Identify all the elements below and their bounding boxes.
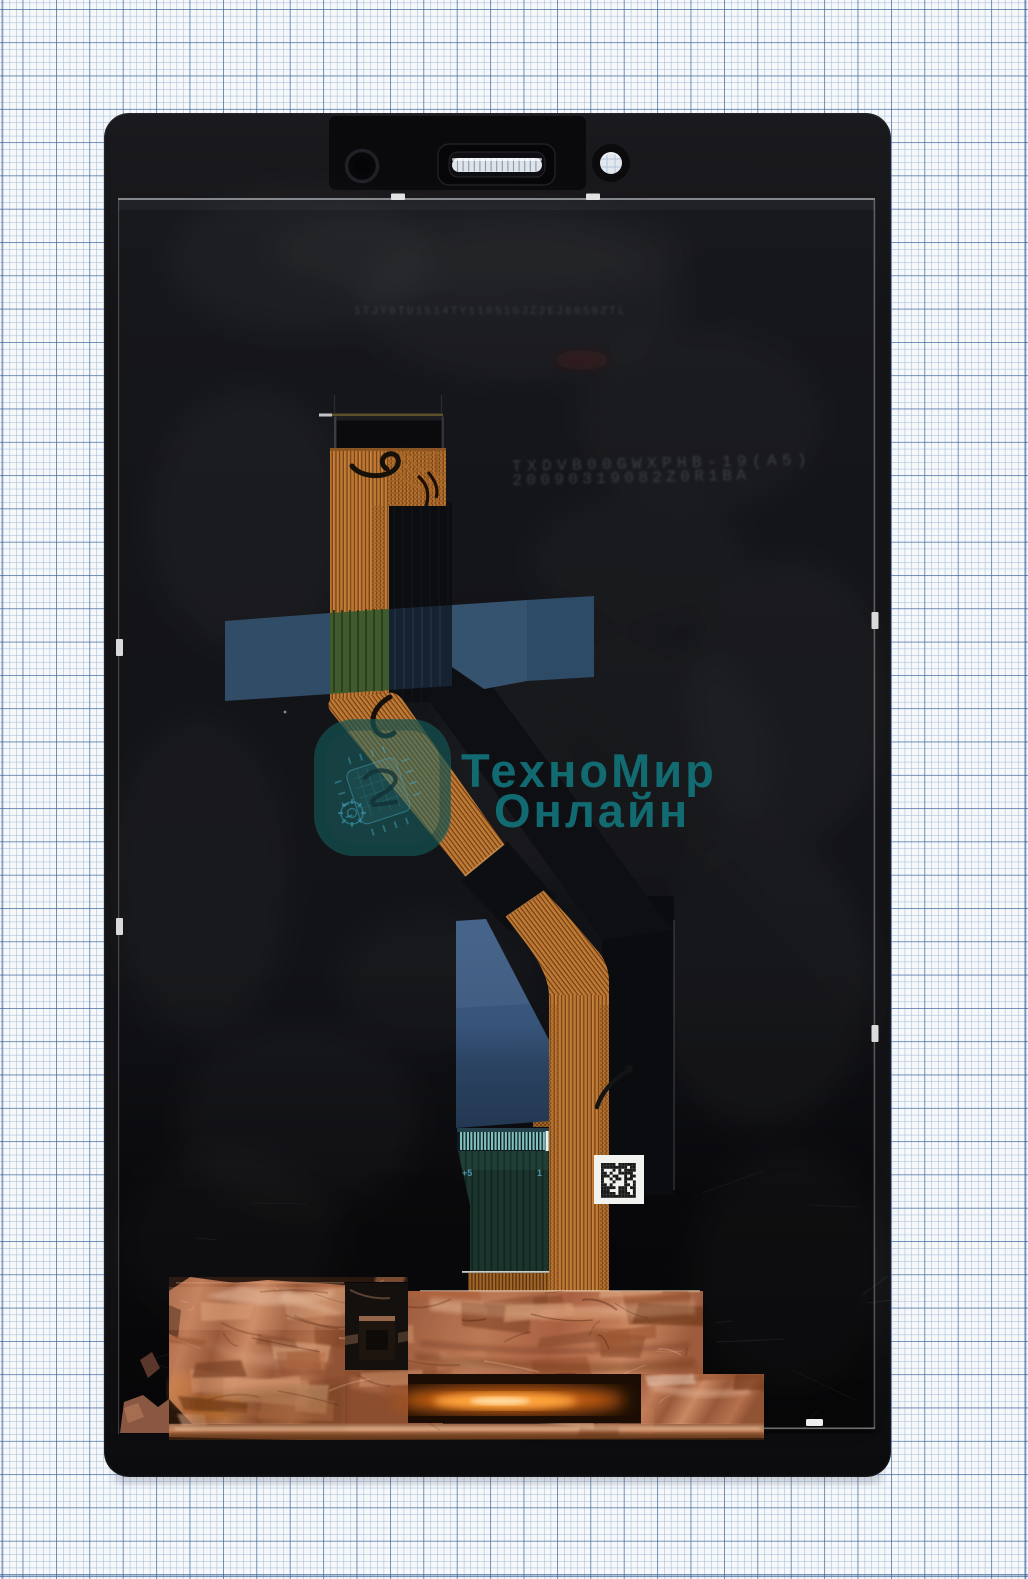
svg-text:+5: +5 bbox=[462, 1168, 472, 1178]
svg-text:1TJY0TU1514TY11051GJZ2EJ6050ZT: 1TJY0TU1514TY11051GJZ2EJ6050ZTL bbox=[354, 306, 627, 318]
svg-text:Онлайн: Онлайн bbox=[494, 784, 690, 837]
svg-text:1: 1 bbox=[537, 1168, 542, 1178]
